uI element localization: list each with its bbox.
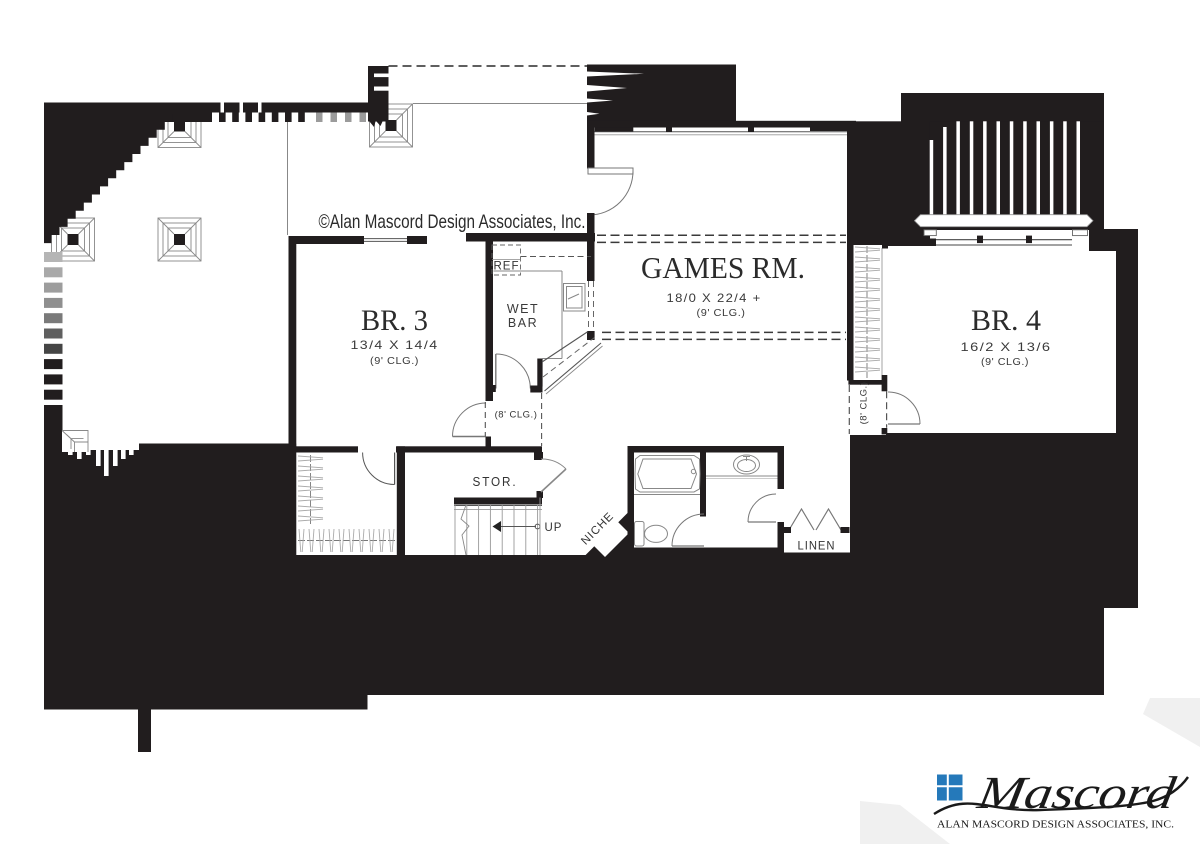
svg-text:(8' CLG.): (8' CLG.) [495,410,538,421]
svg-text:18/0 X 22/4 +: 18/0 X 22/4 + [667,291,762,305]
svg-text:16/2 X 13/6: 16/2 X 13/6 [961,340,1052,354]
svg-text:Mascord: Mascord [973,768,1180,819]
svg-text:(9' CLG.): (9' CLG.) [981,357,1029,368]
svg-text:BAR: BAR [508,316,538,330]
svg-text:13/4 X 14/4: 13/4 X 14/4 [351,338,439,352]
svg-text:(9' CLG.): (9' CLG.) [370,356,419,367]
svg-text:STOR.: STOR. [473,475,518,489]
svg-text:LINEN: LINEN [798,541,836,553]
svg-text:(8' CLG.): (8' CLG.) [859,382,870,425]
svg-text:©Alan Mascord Design Associate: ©Alan Mascord Design Associates, Inc. [319,211,586,233]
svg-text:WET: WET [507,302,539,316]
svg-text:(9' CLG.): (9' CLG.) [697,308,746,319]
svg-text:BR. 3: BR. 3 [361,304,428,337]
svg-text:GAMES RM.: GAMES RM. [641,250,805,285]
svg-text:BR. 4: BR. 4 [971,304,1041,337]
svg-text:ALAN MASCORD DESIGN ASSOCIATES: ALAN MASCORD DESIGN ASSOCIATES, INC. [937,820,1174,831]
svg-text:UP: UP [545,522,563,534]
